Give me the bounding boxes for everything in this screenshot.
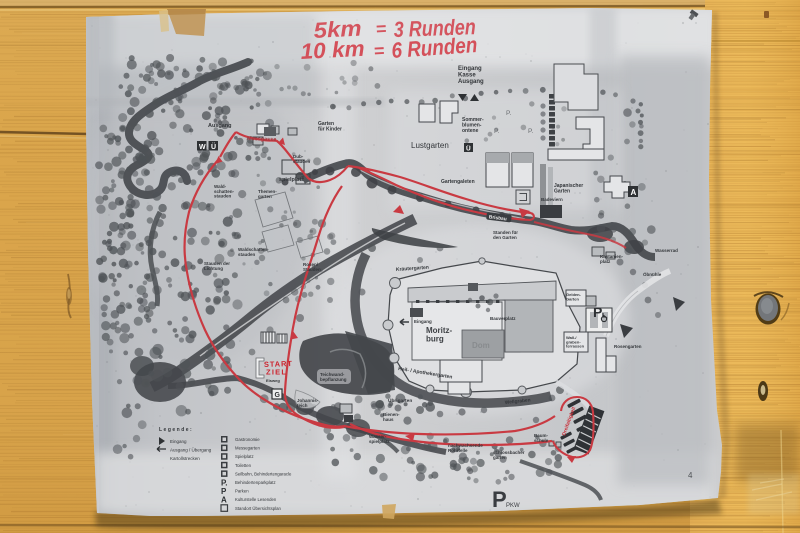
svg-text:Spielplatz: Spielplatz	[235, 454, 254, 459]
svg-text:Messegarten: Messegarten	[235, 446, 260, 451]
svg-text:P.: P.	[506, 110, 511, 117]
svg-text:Ausgang / Übergang: Ausgang / Übergang	[170, 447, 212, 453]
svg-text:Baum-schule: Baum-schule	[534, 433, 549, 443]
svg-text:Seilbahn, Behindertengaracle: Seilbahn, Behindertengaracle	[235, 471, 292, 476]
svg-text:Toiletten: Toiletten	[235, 463, 252, 468]
svg-text:Gartengaleten: Gartengaleten	[441, 179, 475, 185]
svg-text:Wasserrad: Wasserrad	[655, 248, 678, 253]
svg-text:Eingang: Eingang	[414, 319, 432, 324]
svg-text:Kartollstrecken: Kartollstrecken	[170, 456, 200, 461]
svg-text:Badeviern: Badeviern	[541, 197, 563, 202]
svg-text:Behindertenparkplatz: Behindertenparkplatz	[235, 480, 276, 485]
svg-text:Standort Übersichtsplan: Standort Übersichtsplan	[235, 506, 281, 511]
svg-text:Eingang: Eingang	[170, 439, 187, 444]
svg-text:=: =	[373, 40, 385, 61]
svg-text:ZIEL: ZIEL	[266, 368, 286, 377]
svg-text:10 km: 10 km	[300, 36, 365, 64]
svg-text:Dom: Dom	[472, 341, 490, 350]
svg-text:Ausgang: Ausgang	[208, 123, 232, 129]
svg-text:P: P	[593, 304, 602, 320]
svg-text:Bauverplatz: Bauverplatz	[490, 316, 516, 321]
svg-text:Legende:: Legende:	[159, 427, 193, 433]
svg-text:P.: P.	[528, 128, 533, 135]
svg-text:Übrigarten: Übrigarten	[388, 397, 412, 404]
svg-text:G: G	[275, 392, 281, 399]
svg-text:Lustgarten: Lustgarten	[411, 141, 449, 150]
svg-text:Öbnühle: Öbnühle	[643, 271, 662, 277]
svg-text:A: A	[221, 496, 227, 505]
svg-text:Gastronomie: Gastronomie	[235, 437, 260, 442]
svg-text:Teichwand-bepflanzung: Teichwand-bepflanzung	[320, 372, 347, 382]
svg-text:Eisweg: Eisweg	[266, 378, 280, 383]
svg-text:=: =	[375, 18, 387, 39]
svg-text:Messgasse: Messgasse	[247, 136, 277, 143]
svg-text:P.: P.	[494, 128, 499, 135]
svg-text:PKW: PKW	[506, 503, 520, 509]
svg-text:P: P	[492, 487, 507, 512]
svg-text:W: W	[199, 144, 206, 151]
svg-text:spielplatz: spielplatz	[279, 177, 304, 183]
svg-text:Standen fürden Garten: Standen fürden Garten	[493, 230, 518, 240]
svg-text:Kulturstelle Lesenden: Kulturstelle Lesenden	[235, 497, 277, 502]
svg-text:Ü: Ü	[466, 144, 471, 153]
svg-text:A: A	[631, 188, 637, 197]
svg-text:Ü: Ü	[211, 142, 216, 151]
svg-text:Rosengarten: Rosengarten	[614, 344, 642, 349]
svg-text:4: 4	[688, 471, 693, 480]
svg-text:Parken: Parken	[235, 489, 249, 494]
